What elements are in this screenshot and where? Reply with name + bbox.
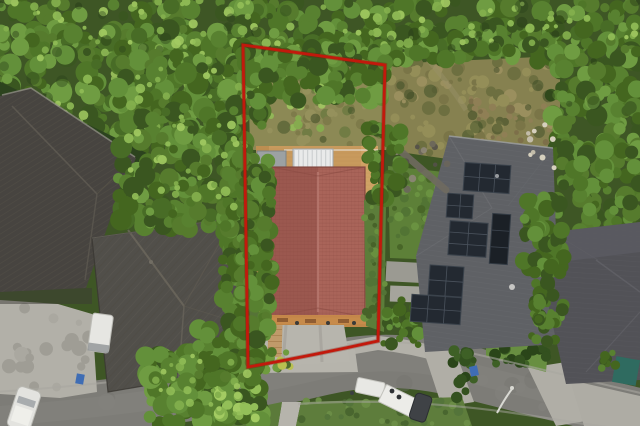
- solar-array-2: [446, 193, 474, 219]
- side-concrete-pad-1: [385, 261, 420, 283]
- deck-post-3: [326, 321, 330, 325]
- deck-post-4: [352, 321, 356, 325]
- red-roof-right-slope: [318, 167, 365, 317]
- roof-vent-1: [149, 260, 153, 264]
- roof-vent-small: [495, 174, 499, 178]
- solar-array-6: [410, 294, 462, 324]
- wall-window-2: [305, 319, 316, 323]
- pedestrian-2: [397, 395, 402, 400]
- street-lamp-head: [510, 386, 514, 390]
- solar-array-1: [463, 162, 511, 193]
- solar-array-4: [489, 213, 510, 264]
- red-roof-left-slope: [271, 167, 318, 317]
- wall-window-1: [277, 318, 288, 322]
- blue-bin-left: [75, 373, 85, 384]
- pedestrian-3: [350, 391, 354, 395]
- wall-window-3: [338, 319, 349, 323]
- aerial-lot-photo: [0, 0, 640, 426]
- solar-array-3: [448, 221, 488, 258]
- roof-vent-white: [509, 284, 515, 290]
- deck-post-2: [295, 321, 299, 325]
- aerial-photo-stage: [0, 0, 640, 426]
- pedestrian-1: [390, 389, 395, 394]
- driveway-strip-2: [320, 325, 322, 362]
- solar-array-5: [428, 265, 464, 297]
